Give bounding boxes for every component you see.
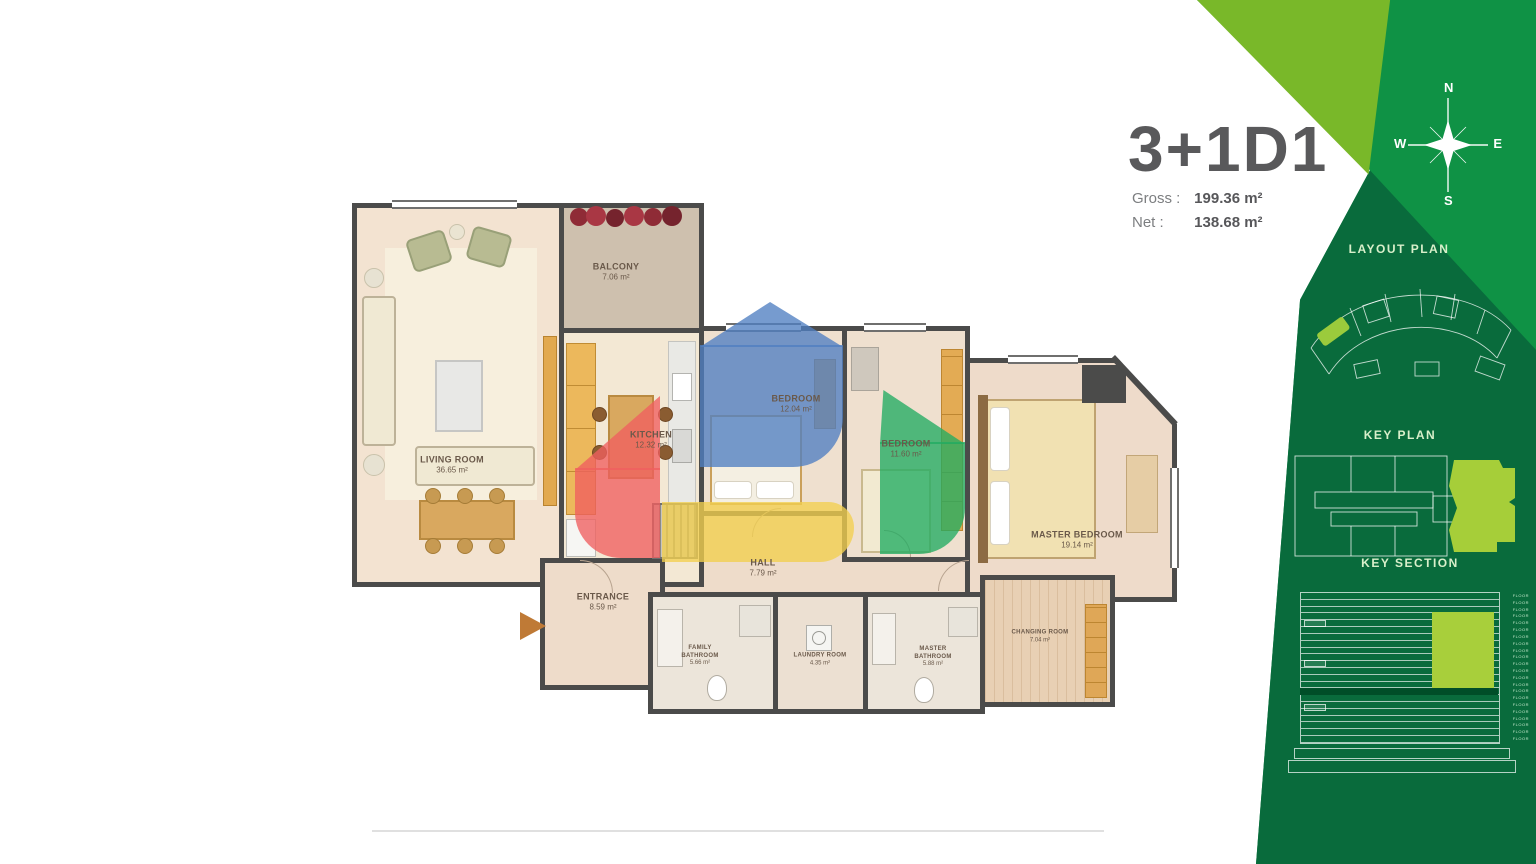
layout-plan-title: LAYOUT PLAN — [1349, 242, 1450, 256]
pillow — [756, 481, 794, 499]
chair — [425, 488, 441, 504]
logo-overlay-red — [575, 468, 660, 558]
toilet — [914, 677, 934, 703]
key-section-floor-row: FLOOR — [1301, 729, 1499, 736]
chair — [658, 407, 673, 422]
label-laundry: LAUNDRY ROOM4.35 m² — [790, 653, 850, 668]
key-plan-highlight-unit — [1449, 460, 1515, 552]
logo-overlay-yellow — [662, 502, 854, 562]
compass-icon — [1398, 82, 1498, 206]
key-section-floor-row: FLOOR — [1301, 736, 1499, 743]
bottom-rule — [372, 830, 1104, 832]
stove — [672, 429, 692, 463]
key-section-tick — [1304, 620, 1326, 627]
key-section-highlight — [1432, 612, 1494, 688]
bench — [1126, 455, 1158, 533]
key-section-floor-row: FLOOR — [1301, 722, 1499, 729]
toilet — [707, 675, 727, 701]
window — [1170, 468, 1179, 568]
key-section-darkband — [1300, 688, 1498, 695]
gross-row: Gross : 199.36 m² — [1132, 190, 1263, 207]
pillow — [990, 481, 1010, 545]
label-balcony: BALCONY7.06 m² — [593, 261, 640, 282]
window — [864, 323, 926, 332]
chair — [457, 538, 473, 554]
key-section-ground — [1288, 760, 1516, 773]
coffee-table — [435, 360, 483, 432]
label-bedroom1: BEDROOM12.04 m² — [771, 393, 820, 414]
side-table — [449, 224, 465, 240]
sofa — [362, 296, 396, 446]
shower — [739, 605, 771, 637]
side-table — [363, 454, 385, 476]
gross-value: 199.36 m² — [1194, 190, 1262, 207]
layout-plan-drawing — [1295, 262, 1530, 402]
key-section-floor-row: FLOOR — [1301, 600, 1499, 607]
key-plan-drawing — [1291, 446, 1531, 571]
gross-label: Gross : — [1132, 190, 1190, 207]
label-bedroom2: BEDROOM11.60 m² — [881, 438, 930, 459]
window — [1008, 355, 1078, 364]
key-section-title: KEY SECTION — [1361, 556, 1459, 570]
wardrobe — [1085, 604, 1107, 698]
key-plan-title: KEY PLAN — [1364, 428, 1436, 442]
key-section-floor-row: FLOOR — [1301, 709, 1499, 716]
key-section-base — [1294, 748, 1510, 759]
label-changing: CHANGING ROOM7.04 m² — [1005, 630, 1075, 645]
key-section-floor-row: FLOOR — [1301, 702, 1499, 709]
label-hall: HALL7.79 m² — [749, 557, 776, 578]
side-table — [364, 268, 384, 288]
floorplan-sheet: 3+1D1 Gross : 199.36 m² Net : 138.68 m² … — [0, 0, 1536, 864]
desk — [851, 347, 879, 391]
vanity-sink — [872, 613, 896, 665]
entrance-arrow-icon — [520, 612, 546, 640]
compass-east-label: E — [1493, 136, 1502, 151]
chair — [457, 488, 473, 504]
layout-plan-highlight-unit — [1316, 316, 1351, 347]
room-living — [352, 203, 564, 587]
chair — [489, 488, 505, 504]
compass: N S W E — [1398, 82, 1498, 206]
net-value: 138.68 m² — [1194, 214, 1262, 231]
compass-south-label: S — [1444, 193, 1453, 208]
label-master: MASTER BEDROOM19.14 m² — [1031, 529, 1123, 550]
logo-overlay-blue-roof — [700, 302, 843, 347]
chair — [592, 407, 607, 422]
flower-planter — [570, 206, 692, 228]
key-section-floor-row: FLOOR — [1301, 593, 1499, 600]
key-section-floor-row: FLOOR — [1301, 695, 1499, 702]
washer-door — [812, 631, 826, 645]
label-kitchen: KITCHEN12.32 m² — [630, 429, 672, 450]
headboard — [978, 395, 988, 563]
compass-north-label: N — [1444, 80, 1453, 95]
label-master-bathroom: MASTER BATHROOM5.88 m² — [903, 646, 963, 669]
shower — [948, 607, 978, 637]
kitchen-sink — [672, 373, 692, 401]
compass-west-label: W — [1394, 136, 1406, 151]
net-row: Net : 138.68 m² — [1132, 214, 1263, 231]
key-section-tick — [1304, 660, 1326, 667]
net-label: Net : — [1132, 214, 1190, 231]
label-family-bathroom: FAMILY BATHROOM5.66 m² — [670, 645, 730, 668]
label-entrance: ENTRANCE8.59 m² — [577, 591, 629, 612]
unit-title: 3+1D1 — [1128, 112, 1328, 186]
key-section-floor-row: FLOOR — [1301, 716, 1499, 723]
pillow — [714, 481, 752, 499]
chair — [425, 538, 441, 554]
key-section-tick — [1304, 704, 1326, 711]
dining-table — [419, 500, 515, 540]
tv-unit — [543, 336, 557, 506]
window — [392, 200, 517, 209]
label-living: LIVING ROOM36.65 m² — [420, 454, 484, 475]
pillow — [990, 407, 1010, 471]
dresser — [1082, 365, 1126, 403]
chair — [489, 538, 505, 554]
